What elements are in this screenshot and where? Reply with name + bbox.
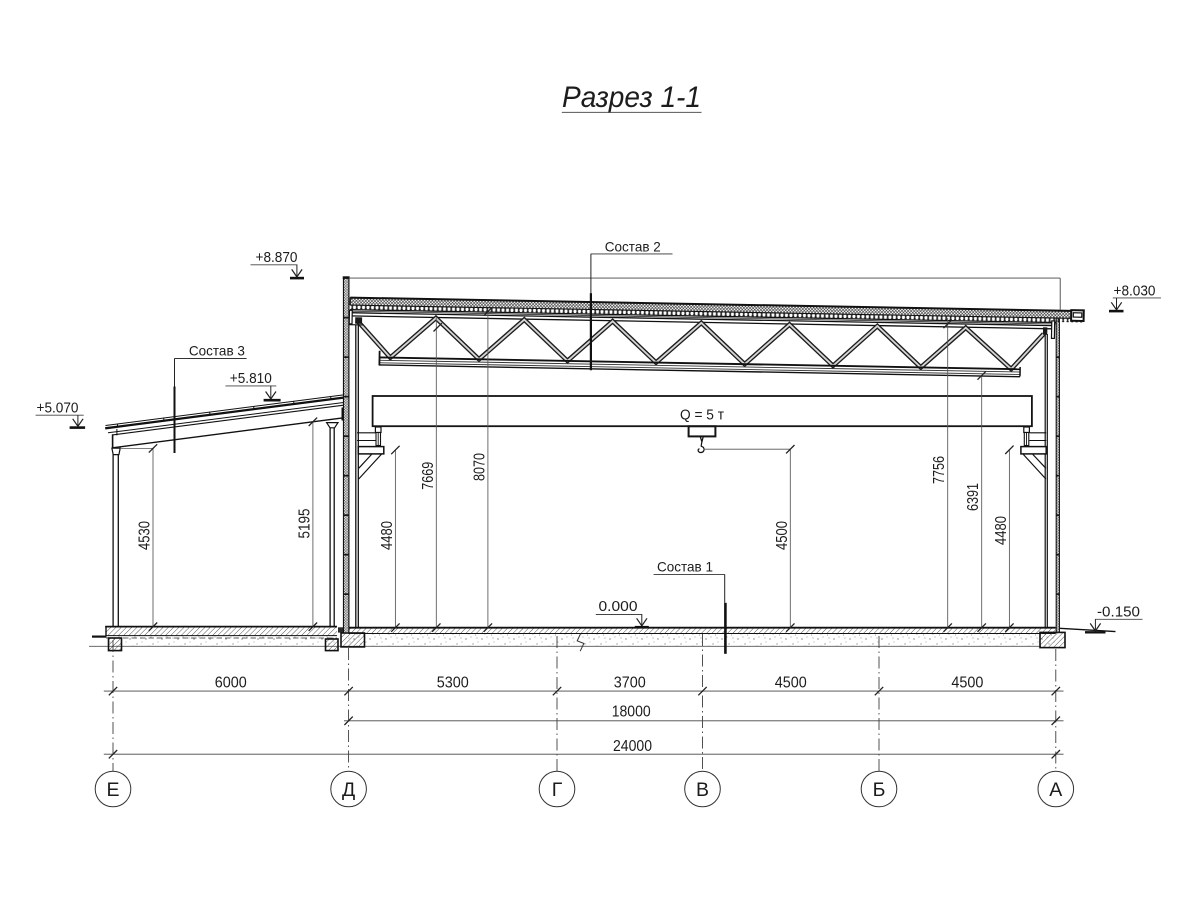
svg-text:Д: Д [342, 779, 355, 801]
svg-text:4480: 4480 [379, 521, 396, 550]
svg-text:8070: 8070 [471, 453, 488, 481]
svg-text:+8.030: +8.030 [1114, 284, 1156, 300]
svg-text:-0.150: -0.150 [1097, 605, 1140, 621]
svg-text:Разрез 1-1: Разрез 1-1 [562, 81, 701, 114]
svg-text:Состав 2: Состав 2 [605, 239, 661, 255]
svg-text:4500: 4500 [774, 521, 791, 550]
svg-text:+5.810: +5.810 [230, 371, 272, 387]
svg-text:7669: 7669 [420, 462, 437, 490]
svg-text:7756: 7756 [931, 456, 948, 484]
svg-text:Е: Е [106, 779, 119, 801]
svg-text:Б: Б [873, 779, 886, 801]
svg-text:24000: 24000 [613, 738, 652, 755]
svg-text:0.000: 0.000 [599, 599, 638, 615]
svg-text:Состав 1: Состав 1 [657, 558, 713, 574]
svg-text:А: А [1049, 779, 1062, 801]
svg-text:+8.870: +8.870 [256, 250, 298, 266]
svg-text:Состав 3: Состав 3 [189, 342, 245, 358]
svg-text:18000: 18000 [612, 704, 651, 721]
svg-text:6391: 6391 [965, 483, 982, 511]
svg-text:4500: 4500 [775, 675, 807, 692]
svg-text:3700: 3700 [614, 675, 646, 692]
svg-text:5300: 5300 [437, 675, 469, 692]
svg-text:+5.070: +5.070 [37, 401, 79, 417]
svg-text:4530: 4530 [137, 521, 154, 550]
svg-text:Г: Г [552, 779, 563, 801]
svg-text:4500: 4500 [951, 675, 983, 692]
svg-text:Q = 5 т: Q = 5 т [680, 408, 724, 424]
svg-text:5195: 5195 [296, 508, 313, 538]
svg-text:4480: 4480 [993, 516, 1010, 545]
svg-text:6000: 6000 [215, 675, 247, 692]
svg-text:В: В [696, 779, 709, 801]
